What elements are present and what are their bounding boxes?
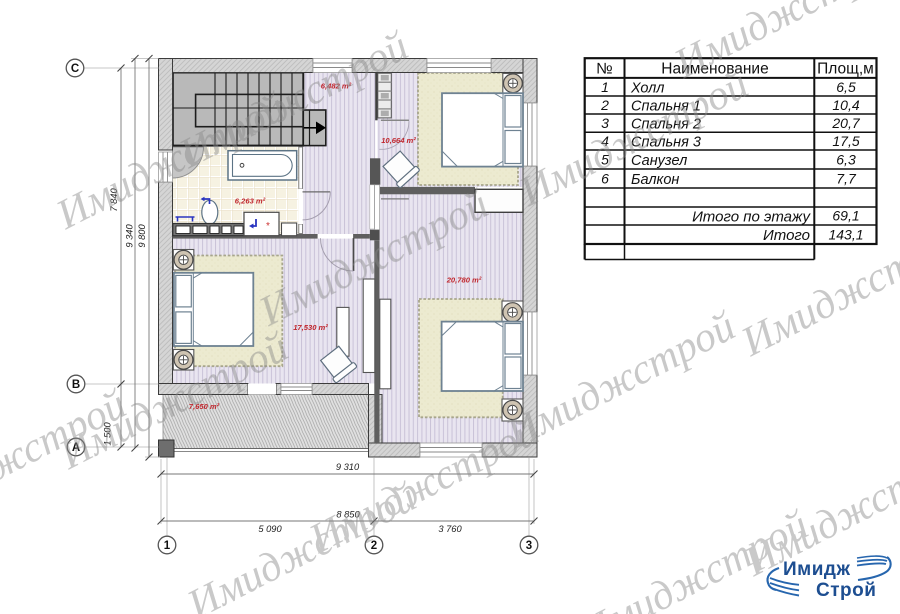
svg-text:Строй: Строй [816,580,876,601]
svg-text:C: C [71,63,79,75]
svg-text:5 090: 5 090 [258,524,282,534]
svg-text:17,530 m²: 17,530 m² [293,323,328,332]
svg-text:*: * [266,221,270,232]
svg-text:Балкон: Балкон [631,172,679,188]
svg-text:6,3: 6,3 [836,152,856,168]
svg-text:Итого: Итого [763,227,810,244]
svg-text:2: 2 [600,97,609,113]
svg-text:2: 2 [371,540,377,552]
svg-text:1: 1 [164,540,171,552]
svg-text:1: 1 [601,79,609,95]
svg-text:17,5: 17,5 [832,133,859,149]
svg-text:6,263 m²: 6,263 m² [235,197,266,206]
svg-text:B: B [72,379,80,391]
svg-text:3: 3 [526,540,532,552]
svg-text:Итого по этажу: Итого по этажу [692,208,811,225]
svg-text:9 310: 9 310 [336,462,360,472]
svg-text:10,4: 10,4 [832,97,859,113]
svg-text:69,1: 69,1 [832,208,859,224]
svg-text:7,7: 7,7 [836,171,857,187]
svg-text:№: № [596,60,613,77]
svg-text:20,7: 20,7 [831,115,860,131]
svg-text:10,664 m²: 10,664 m² [381,136,416,145]
svg-text:9 800: 9 800 [137,224,147,248]
svg-text:3 760: 3 760 [438,524,462,534]
svg-text:6,5: 6,5 [836,79,856,95]
svg-text:143,1: 143,1 [828,227,863,243]
svg-text:Площ,м: Площ,м [817,60,874,77]
svg-text:Холл: Холл [630,80,664,96]
svg-text:20,780 m²: 20,780 m² [446,275,482,284]
svg-text:9 340: 9 340 [125,224,135,248]
